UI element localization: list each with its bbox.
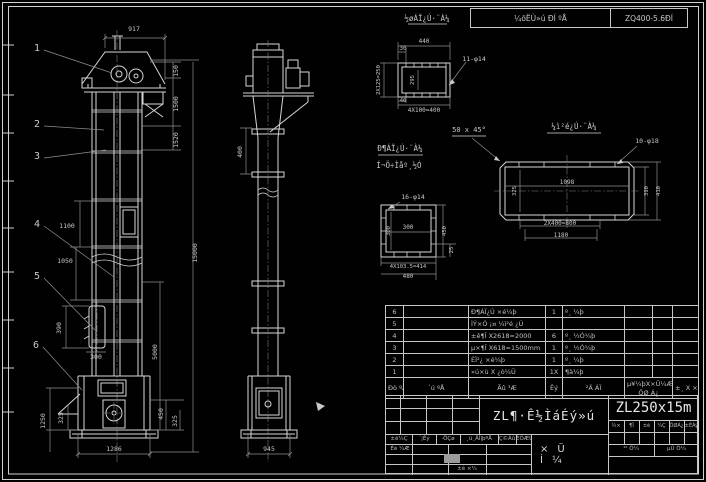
dim-side-width: 945: [263, 445, 275, 453]
cell-no: 2: [386, 354, 404, 366]
designer-label: Éè ¼Æ: [388, 445, 412, 454]
model-number: ZL250x15m: [608, 396, 699, 420]
outlet-holes-note: 16-φ14: [401, 193, 425, 201]
plate-holes-note: 10-φ18: [635, 137, 659, 145]
dim-side-400: 400: [236, 146, 244, 158]
callout-balloon-6: 6: [33, 340, 39, 351]
title-block: ZL250x15m ZL¶·Ê½ÌáÉý»ú ×Ü Í¼ ±ê¼Ç ´¦Êý ·…: [385, 395, 698, 474]
weld-mark: [316, 402, 325, 411]
cell-no: 6: [386, 306, 404, 318]
reducer-model: ZQ400-5.6ÐÍ: [610, 8, 688, 28]
dim-section-1100: 1100: [59, 222, 75, 230]
parts-row: 1»ú×ù X ¿ò¼Ü1X¶à¼þ: [386, 366, 699, 378]
cell-note: [673, 318, 699, 330]
boot-door: [98, 380, 126, 396]
drive-pulley: [111, 66, 127, 82]
cell-name: »ú×ù X ¿ò¼Ü: [469, 366, 546, 378]
tiny-4: ÖØÁ¿: [669, 422, 684, 431]
dim-overall-15000: 15000: [191, 243, 199, 263]
cell-w1: [625, 306, 653, 318]
inlet-dim-295: 295: [410, 75, 416, 85]
parts-list-table: 6Ð¶ÁÏ¿Ú ×é¼þ1º¸ ¼þ5ÌÝ×Ó ¡¤ ¼ì²é ¿Ú4±ê¶Î …: [385, 305, 699, 399]
outlet-title-2: Í¬Ö÷Ìåº¸½Ó: [376, 161, 422, 170]
cell-w2: [653, 306, 673, 318]
tiny-5: ±ÈÀý: [684, 422, 699, 431]
cell-note: [673, 306, 699, 318]
cell-name: µ×¶Î X618=1500mm: [469, 342, 546, 354]
cell-mat: º¸ ¼þ: [563, 306, 625, 318]
cell-w2: [653, 318, 673, 330]
reducer-label: ¼õËÙ»ú ÐÍ ºÅ: [470, 8, 610, 28]
parts-row: 2ÉÏ²¿ ×é¼þ1º¸ ¼þ: [386, 354, 699, 366]
cell-qty: [546, 318, 563, 330]
cell-w1: [625, 318, 653, 330]
dim-upper-1520: 1520: [172, 132, 180, 148]
plate-dim-325: 325: [512, 186, 518, 196]
parts-row: 3µ×¶Î X618=1500mm1º¸ ½Ó¼þ: [386, 342, 699, 354]
cell-name: Ð¶ÁÏ¿Ú ×é¼þ: [469, 306, 546, 318]
cell-qty: 1: [546, 306, 563, 318]
cell-mat: ¶à¼þ: [563, 366, 625, 378]
tiny-2: ±ê: [639, 422, 654, 431]
inlet-dim-30: 30: [399, 45, 407, 52]
parts-row: 6Ð¶ÁÏ¿Ú ×é¼þ1º¸ ¼þ: [386, 306, 699, 318]
callout-balloon-4: 4: [34, 219, 40, 230]
cell-w1: [625, 330, 653, 342]
motor-mount: [82, 78, 92, 88]
cell-note: [673, 354, 699, 366]
side-view: [240, 40, 325, 462]
outlet-dim-300h: 300: [403, 224, 414, 231]
cell-no: 4: [386, 330, 404, 342]
outlet-dim-414: 4X103.5=414: [390, 264, 427, 270]
parts-row: 5ÌÝ×Ó ¡¤ ¼ì²é ¿Ú: [386, 318, 699, 330]
dim-window-390: 390: [55, 322, 63, 334]
outlet-title-1: Ð¶ÁÏ¿Ú·¨À¼: [377, 144, 423, 153]
inlet-dim-40: 40: [400, 98, 407, 104]
cell-qty: 1: [546, 342, 563, 354]
cell-mat: º¸ ¼þ: [563, 354, 625, 366]
strip-mark: ±ê¼Ç: [386, 435, 412, 444]
drawing-type: ×Ü Í¼: [531, 434, 609, 475]
dim-lower-5000: 5000: [151, 344, 159, 360]
cell-code: [404, 330, 469, 342]
outlet-dim-480: 480: [403, 273, 414, 280]
cell-code: [404, 342, 469, 354]
cell-note: [673, 366, 699, 378]
cell-mat: [563, 318, 625, 330]
cell-no: 3: [386, 342, 404, 354]
detail-outlet-flange: [378, 155, 456, 280]
cell-mat: º¸ ½Ó¼þ: [563, 330, 625, 342]
plate-dim-800: 2X400=800: [544, 220, 577, 227]
strip-docno: ¸ü¸ÄÎļþºÅ: [460, 435, 498, 444]
cell-w1: [625, 354, 653, 366]
chamfer-note: 50 x 45°: [452, 126, 486, 134]
tiny-3: ¼Ç: [654, 422, 669, 431]
front-view: [43, 30, 199, 462]
inlet-dim-440: 440: [419, 38, 430, 45]
inlet-dim-400: 4X100=400: [408, 107, 441, 114]
cell-note: [673, 342, 699, 354]
cell-w2: [653, 342, 673, 354]
reducer-info-bar: ¼õËÙ»ú ÐÍ ºÅ ZQ400-5.6ÐÍ: [470, 8, 688, 28]
strip-sign: Ç©Ãû: [498, 435, 516, 444]
drawing-sheet: 9171501500152015000500011001050390300125…: [0, 0, 706, 482]
callout-balloon-2: 2: [34, 119, 40, 130]
cell-code: [404, 318, 469, 330]
plate-dim-410: 410: [656, 186, 662, 196]
dim-window-300: 300: [90, 353, 102, 361]
drive-motor: [129, 69, 143, 83]
cell-w2: [653, 366, 673, 378]
outlet-dim-25: 25: [449, 247, 455, 254]
product-title: ZL¶·Ê½ÌáÉý»ú: [479, 396, 609, 434]
cell-qty: 1X: [546, 366, 563, 378]
cell-code: [404, 306, 469, 318]
cell-qty: 1: [546, 354, 563, 366]
inlet-holes-note: 11-φ14: [462, 55, 486, 63]
strip-zone: ·ÖÇø: [436, 435, 460, 444]
dim-boot-1250: 1250: [39, 413, 47, 429]
sheet-number: µÚ Õ¼: [654, 445, 699, 454]
cell-qty: 6: [546, 330, 563, 342]
platform-bracket: [143, 92, 163, 104]
cell-name: ÉÏ²¿ ×é¼þ: [469, 354, 546, 366]
approve-label: ±ê ×¼: [450, 465, 484, 474]
cell-name: ±ê¶Î X2618=2000: [469, 330, 546, 342]
cell-w1: [625, 366, 653, 378]
tiny-1: ¶Î: [624, 422, 639, 431]
plate-title: ¼ì²é¿Ú·¨À¼: [551, 122, 597, 131]
cell-code: [404, 366, 469, 378]
detail-inlet-flange: [380, 24, 466, 109]
callout-balloon-5: 5: [34, 271, 40, 282]
motor-box: [286, 68, 300, 88]
dim-boot-325b: 325: [171, 415, 179, 427]
parts-row: 4±ê¶Î X2618=20006º¸ ½Ó¼þ: [386, 330, 699, 342]
cell-no: 1: [386, 366, 404, 378]
plate-dim-390: 390: [644, 186, 650, 196]
inlet-dim-250: 2X125=250: [376, 65, 382, 95]
dim-upper-1500: 1500: [172, 96, 180, 112]
cell-w2: [653, 330, 673, 342]
check-stamp: [444, 454, 460, 463]
callout-balloon-3: 3: [34, 151, 40, 162]
cell-code: [404, 354, 469, 366]
dim-head-150: 150: [172, 65, 180, 77]
strip-date: ÈÕÆÚ: [516, 435, 531, 444]
tiny-0: ½×: [608, 422, 624, 431]
sheet-total: ¹² Õ¼: [608, 445, 654, 454]
dim-boot-325: 325: [57, 412, 65, 424]
cell-mat: º¸ ½Ó¼þ: [563, 342, 625, 354]
plate-dim-1098: 1098: [560, 179, 575, 186]
dim-boot-450: 450: [157, 408, 165, 420]
dim-boot-width: 1286: [106, 445, 122, 453]
cell-w1: [625, 342, 653, 354]
cell-note: [673, 330, 699, 342]
col-weight-top: µ¥¼þX×Ü¼Æ: [627, 380, 670, 388]
cell-w2: [653, 354, 673, 366]
callout-leaders: [43, 50, 114, 390]
plate-dim-1180: 1180: [554, 232, 569, 239]
outlet-dim-450: 450: [442, 226, 448, 236]
callout-balloon-1: 1: [34, 43, 40, 54]
cell-no: 5: [386, 318, 404, 330]
outlet-dim-300v: 300: [386, 226, 392, 236]
dim-top-width: 917: [128, 25, 140, 33]
cell-name: ÌÝ×Ó ¡¤ ¼ì²é ¿Ú: [469, 318, 546, 330]
inlet-title: ½øÁÏ¿Ú·¨À¼: [404, 14, 450, 23]
dim-section-1050: 1050: [57, 257, 73, 265]
strip-count: ´¦Êý: [412, 435, 436, 444]
